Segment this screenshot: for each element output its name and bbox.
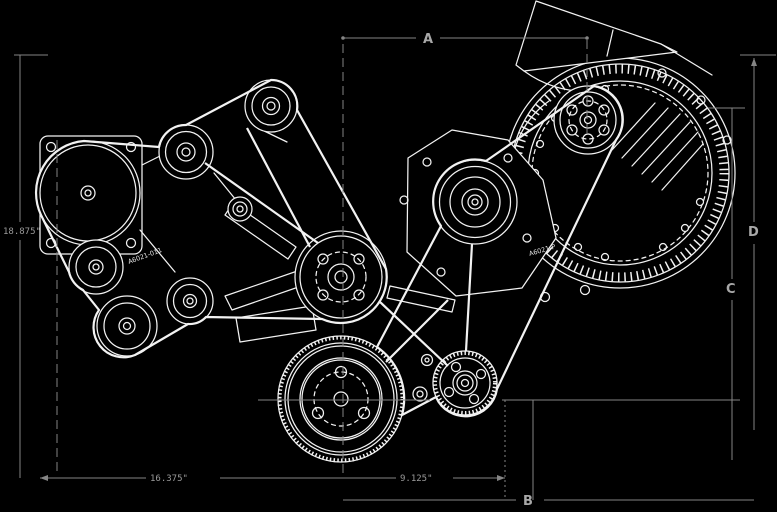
tensioner-stud — [228, 197, 252, 221]
dim-bottom-right-label: 9.125" — [400, 474, 433, 484]
supercharger-pulley-hub — [554, 86, 622, 154]
dim-d-label: D — [748, 225, 759, 240]
dim-left-height-label: 18.875" — [3, 227, 41, 237]
dim-b-label: B — [523, 494, 533, 509]
dim-c-label: C — [726, 282, 736, 297]
engineering-drawing: A6021-011 A6021-P A 18.875" 16.375" — [0, 0, 777, 512]
dim-bottom-left-label: 16.375" — [150, 474, 188, 484]
dim-a-label: A — [423, 32, 433, 47]
